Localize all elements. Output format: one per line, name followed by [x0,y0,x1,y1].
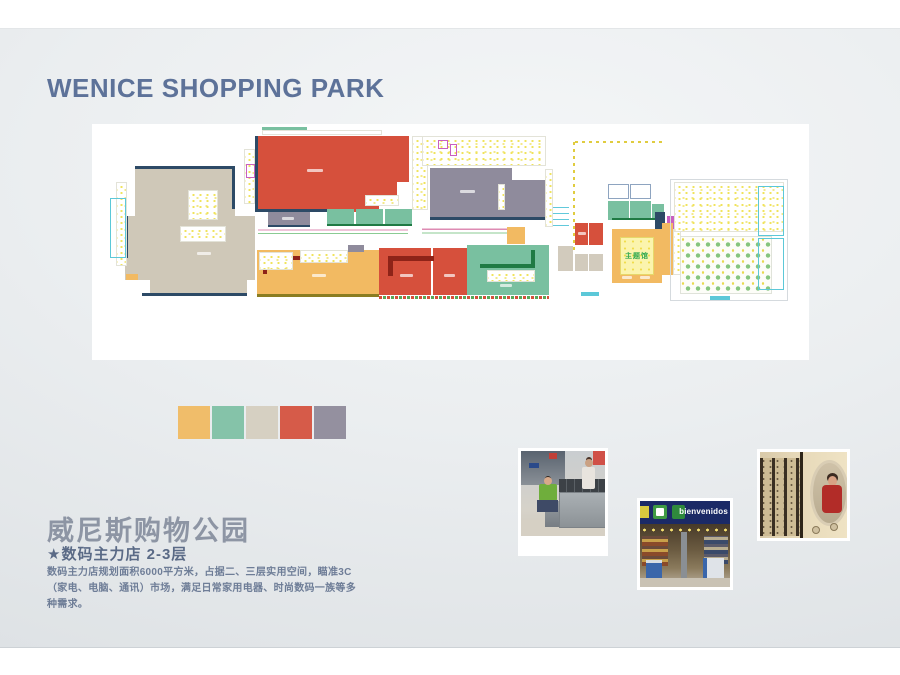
service-outline [450,144,457,156]
small-unit [507,227,525,244]
inner-room [487,270,535,282]
slide-title: WENICE SHOPPING PARK [47,73,384,104]
store-logo-icon [653,505,667,519]
wall [257,294,379,297]
core-strip [545,169,553,227]
slide-viewport: WENICE SHOPPING PARK 主题馆 威尼斯购物公园 ★数码主力店 … [0,0,900,675]
small-unit [348,245,364,252]
small-unit [126,274,138,280]
unit-label [444,274,455,277]
photo-detail [812,526,820,534]
service-outline [438,140,448,149]
caption-mark [581,292,599,296]
service-outline [246,164,255,178]
photo-detail [800,452,803,538]
inner-room [259,252,293,270]
color-palette [178,406,346,439]
photo-boutique [760,452,847,538]
corridor-waves [258,226,408,237]
floor-plan-panel: 主题馆 [92,124,809,360]
unit-teal [327,209,354,224]
anchor-red [255,136,379,212]
photo-detail [760,458,800,536]
hatch-strip [379,296,469,299]
photo-person [544,477,552,485]
unit-teal [385,209,412,224]
glass-outline [758,238,784,290]
unit-label [578,232,586,235]
glass-outline [758,186,784,236]
room-outline [630,184,651,199]
storefront-banner: bienvenidos [640,501,730,524]
wall [480,264,535,268]
unit-teal [356,209,383,224]
unit-label [400,274,413,277]
photo-detail [549,453,557,459]
hatch-strip [467,296,549,299]
grid-dotline [575,141,663,143]
description-text: 数码主力店规划面积6000平方米，占据二、三层实用空间，瞄准3C（家电、电脑、通… [47,565,357,613]
photo-detail [559,492,605,528]
palette-swatch [178,406,210,439]
caption-mark [710,296,730,300]
store-line: ★数码主力店 2-3层 [47,543,187,564]
wall [388,256,434,261]
photo-detail [640,506,649,518]
photo-person [582,467,595,489]
shop-detail-zone [262,130,382,135]
unit-label [312,274,326,277]
unit-label [282,217,294,220]
unit-red [589,223,603,245]
glass-outline [110,198,126,258]
room-outline [608,184,629,199]
anchor-red [379,136,409,182]
wall [232,169,235,209]
photo-card-storefront: bienvenidos [637,498,733,590]
anchor-gray [512,180,545,219]
photo-detail [681,532,687,584]
palette-swatch [280,406,312,439]
unit-label [460,190,475,193]
photo-detail [830,523,838,531]
inner-room [365,195,399,206]
unit-label [640,276,650,279]
banner-text: bienvenidos [679,507,728,516]
photo-person [585,459,593,467]
theme-hall: 主题馆 [620,237,654,275]
slide: WENICE SHOPPING PARK 主题馆 威尼斯购物公园 ★数码主力店 … [0,28,900,648]
palette-swatch [314,406,346,439]
photo-person [537,500,558,512]
small-unit [262,127,307,130]
photo-detail [640,578,730,587]
photo-detail [640,524,730,587]
wall [135,166,235,169]
inner-room [300,250,348,263]
photo-card-boutique [757,449,850,541]
unit-beige [589,254,603,271]
unit-label [307,169,323,172]
palette-swatch [246,406,278,439]
photo-detail [529,463,539,468]
wall [255,136,258,212]
inner-room [498,184,505,210]
inner-room [180,226,226,242]
unit-label [197,252,211,255]
photo-detail [593,451,605,465]
photo-person [822,485,842,513]
unit-beige [558,246,573,271]
unit-label [622,276,632,279]
anchor-west-beige [135,169,235,219]
wall [388,256,393,276]
photo-storefront: bienvenidos [640,501,730,587]
wall [142,293,247,296]
unit-label [500,284,512,287]
photo-card-appliance [518,448,608,556]
photo-appliance-store [521,451,605,536]
corridor-waves [422,225,510,237]
unit-beige [575,254,588,271]
palette-swatch [212,406,244,439]
inner-room [188,190,218,220]
photo-mirror [810,460,847,526]
wall [430,217,545,220]
wall [531,250,535,268]
photo-person [539,484,557,501]
